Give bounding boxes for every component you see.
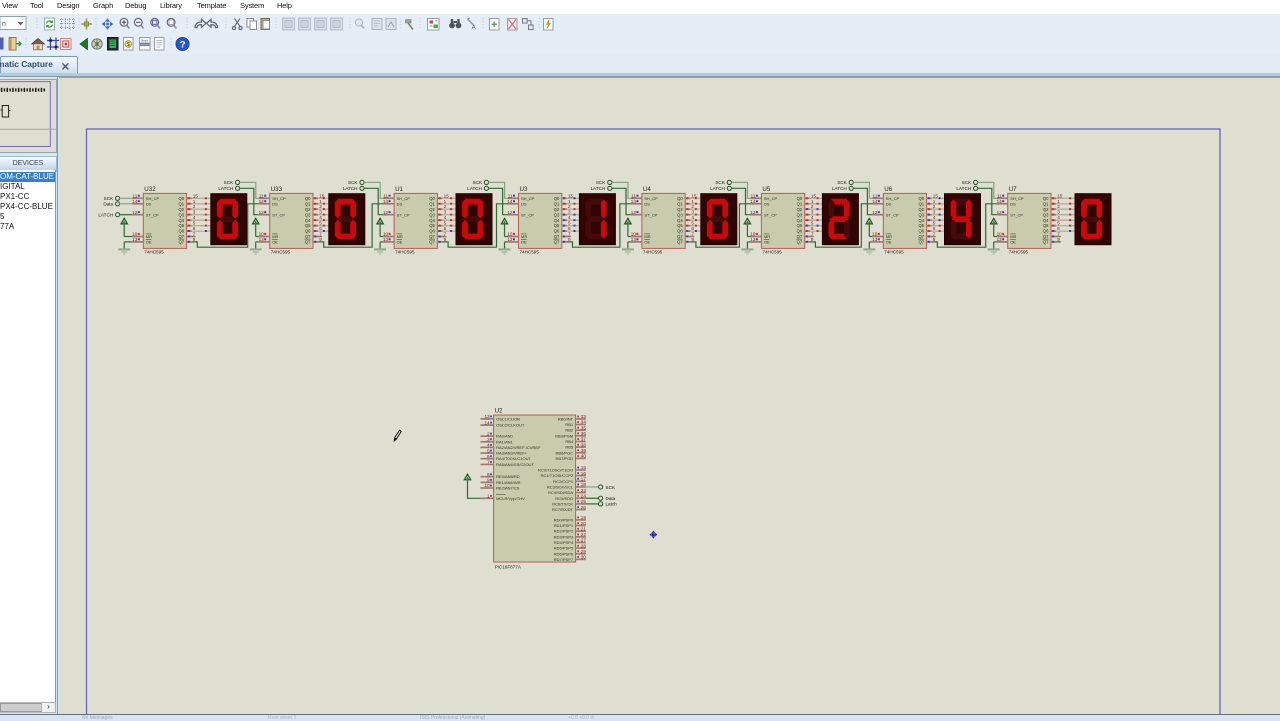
svg-text:Q0: Q0 (1043, 196, 1049, 201)
svg-text:10: 10 (484, 483, 490, 488)
svg-text:13: 13 (484, 414, 490, 419)
svg-text:RC7/RX/DT: RC7/RX/DT (552, 507, 574, 512)
svg-text:U6: U6 (884, 186, 892, 193)
svg-text:Q1: Q1 (797, 201, 803, 206)
svg-text:DS: DS (886, 201, 892, 206)
svg-text:PIC16F877A: PIC16F877A (495, 565, 522, 570)
svg-text:15: 15 (319, 193, 325, 198)
svg-text:6: 6 (691, 226, 694, 231)
svg-text:SCK: SCK (596, 180, 606, 185)
svg-text:5: 5 (319, 221, 322, 226)
svg-text:11: 11 (631, 194, 636, 199)
svg-text:Q0: Q0 (919, 196, 925, 201)
svg-text:Q7: Q7 (677, 240, 683, 245)
svg-text:16: 16 (581, 471, 587, 476)
svg-text:SH_CP: SH_CP (521, 196, 535, 201)
svg-text:RD0/PSP0: RD0/PSP0 (554, 517, 574, 522)
svg-text:SCK: SCK (472, 180, 482, 185)
svg-text:RA2/AN2/VREF-/CVREF: RA2/AN2/VREF-/CVREF (496, 445, 541, 450)
svg-text:5: 5 (444, 221, 447, 226)
svg-text:26: 26 (581, 505, 587, 510)
svg-text:0mm: 0mm (141, 39, 149, 43)
svg-text:7: 7 (811, 232, 814, 237)
svg-text:Q2: Q2 (1043, 207, 1049, 212)
svg-text:Q2: Q2 (305, 207, 311, 212)
svg-text:15: 15 (581, 465, 587, 470)
svg-text:MR: MR (397, 234, 403, 239)
svg-text:22: 22 (581, 532, 587, 537)
svg-text:2: 2 (568, 204, 571, 209)
svg-text:Q0: Q0 (429, 196, 435, 201)
svg-text:LATCH: LATCH (98, 213, 113, 218)
svg-text:Q4: Q4 (305, 218, 311, 223)
svg-text:SCK: SCK (606, 485, 616, 490)
svg-text:3: 3 (193, 210, 196, 215)
svg-text:Data: Data (103, 202, 113, 207)
svg-text:Q6: Q6 (677, 229, 683, 234)
svg-text:13: 13 (631, 237, 637, 242)
svg-text:Q6: Q6 (429, 229, 435, 234)
svg-text:Q2: Q2 (179, 207, 185, 212)
svg-text:OE: OE (644, 240, 650, 245)
svg-text:74HC595: 74HC595 (395, 250, 415, 255)
svg-text:RA0/AN0: RA0/AN0 (496, 434, 513, 439)
svg-text:Q2: Q2 (919, 207, 925, 212)
svg-text:7: 7 (1057, 232, 1060, 237)
svg-text:6: 6 (1057, 226, 1060, 231)
svg-text:Q6: Q6 (797, 229, 803, 234)
svg-text:7: 7 (691, 232, 694, 237)
svg-text:Q4: Q4 (429, 218, 435, 223)
svg-text:4: 4 (933, 215, 936, 220)
svg-text:Latch: Latch (606, 502, 618, 507)
svg-text:11: 11 (383, 194, 388, 199)
svg-text:15: 15 (193, 193, 199, 198)
svg-text:Q6: Q6 (919, 229, 925, 234)
svg-text:1: 1 (933, 199, 936, 204)
svg-text:MCLR/Vpp/THV: MCLR/Vpp/THV (496, 496, 525, 501)
svg-text:RA3/AN3/VREF+: RA3/AN3/VREF+ (496, 451, 527, 456)
svg-text:U3: U3 (520, 186, 528, 193)
svg-text:7: 7 (444, 232, 447, 237)
svg-text:RC4/SDI/SDA: RC4/SDI/SDA (548, 490, 573, 495)
svg-text:RD2/PSP2: RD2/PSP2 (554, 529, 574, 534)
svg-text:7: 7 (933, 232, 936, 237)
svg-text:Q1: Q1 (305, 201, 311, 206)
svg-text:6: 6 (193, 226, 196, 231)
svg-text:2: 2 (933, 204, 936, 209)
svg-text:9: 9 (487, 478, 490, 483)
svg-text:Q0: Q0 (179, 196, 185, 201)
svg-text:15: 15 (1057, 193, 1063, 198)
svg-text:3: 3 (811, 210, 814, 215)
svg-text:Q7: Q7 (305, 234, 311, 239)
svg-text:OE: OE (521, 240, 527, 245)
svg-text:28: 28 (581, 543, 587, 548)
svg-text:14: 14 (997, 199, 1003, 204)
svg-text:2: 2 (193, 204, 196, 209)
svg-text:13: 13 (750, 237, 756, 242)
svg-text:LATCH: LATCH (467, 186, 482, 191)
svg-text:5: 5 (487, 448, 490, 453)
svg-text:Q0: Q0 (305, 196, 311, 201)
svg-text:33: 33 (581, 414, 587, 419)
svg-text:21: 21 (581, 526, 587, 531)
svg-text:15: 15 (691, 193, 697, 198)
svg-text:74HC595: 74HC595 (1009, 250, 1029, 255)
svg-text:14: 14 (132, 199, 138, 204)
svg-text:SCK: SCK (224, 180, 234, 185)
svg-text:Q5: Q5 (1043, 223, 1049, 228)
svg-text:Q5: Q5 (305, 223, 311, 228)
svg-text:SH_CP: SH_CP (272, 196, 286, 201)
svg-text:RB7/PGD: RB7/PGD (556, 456, 574, 461)
svg-text:Q7: Q7 (919, 234, 925, 239)
svg-text:9: 9 (319, 237, 322, 242)
svg-text:4: 4 (319, 215, 322, 220)
svg-text:8: 8 (487, 472, 490, 477)
svg-text:1: 1 (444, 199, 447, 204)
svg-text:Q4: Q4 (1043, 218, 1049, 223)
svg-text:MR: MR (272, 234, 278, 239)
svg-text:19: 19 (581, 515, 587, 520)
svg-text:Q7: Q7 (179, 234, 185, 239)
svg-text:13: 13 (872, 237, 878, 242)
svg-text:RA1/AN1: RA1/AN1 (496, 439, 513, 444)
svg-text:14: 14 (750, 199, 756, 204)
svg-text:6: 6 (811, 226, 814, 231)
svg-text:10: 10 (872, 232, 878, 237)
svg-text:Q7: Q7 (429, 240, 435, 245)
svg-text:11: 11 (751, 194, 756, 199)
svg-text:3: 3 (1057, 210, 1060, 215)
svg-text:RD7/PSP7: RD7/PSP7 (554, 557, 574, 562)
svg-text:Q3: Q3 (797, 212, 803, 217)
svg-text:Q3: Q3 (919, 212, 925, 217)
svg-text:Q4: Q4 (797, 218, 803, 223)
svg-text:U5: U5 (762, 186, 770, 193)
svg-text:RC2/CCP1: RC2/CCP1 (553, 479, 574, 484)
svg-text:23: 23 (581, 488, 587, 493)
svg-text:MR: MR (764, 234, 770, 239)
svg-text:DS: DS (764, 201, 770, 206)
svg-text:DS: DS (272, 201, 278, 206)
svg-text:3: 3 (444, 210, 447, 215)
svg-text:4: 4 (691, 215, 694, 220)
svg-text:38: 38 (581, 442, 587, 447)
svg-text:4: 4 (811, 215, 814, 220)
svg-text:14: 14 (259, 199, 265, 204)
svg-text:7: 7 (193, 232, 196, 237)
svg-text:29: 29 (581, 549, 587, 554)
svg-text:12: 12 (997, 210, 1003, 215)
svg-text:10: 10 (750, 232, 756, 237)
svg-text:OE: OE (272, 240, 278, 245)
svg-text:11: 11 (997, 194, 1002, 199)
svg-text:6: 6 (933, 226, 936, 231)
svg-text:1: 1 (691, 199, 694, 204)
svg-text:Q6: Q6 (1043, 229, 1049, 234)
svg-text:12: 12 (383, 210, 389, 215)
svg-text:9: 9 (568, 237, 571, 242)
svg-text:Q7: Q7 (1043, 240, 1049, 245)
svg-text:6: 6 (487, 454, 490, 459)
svg-text:Q1: Q1 (677, 201, 683, 206)
svg-text:SH_CP: SH_CP (644, 196, 658, 201)
svg-text:2: 2 (691, 204, 694, 209)
svg-text:11: 11 (133, 194, 138, 199)
svg-text:1: 1 (487, 494, 490, 499)
svg-text:Q5: Q5 (677, 223, 683, 228)
svg-text:3: 3 (568, 210, 571, 215)
svg-text:11: 11 (259, 194, 264, 199)
svg-text:9: 9 (444, 237, 447, 242)
svg-text:Q5: Q5 (429, 223, 435, 228)
svg-text:U2: U2 (495, 408, 503, 415)
svg-text:14: 14 (507, 199, 513, 204)
svg-text:20: 20 (581, 521, 587, 526)
svg-text:Q2: Q2 (797, 207, 803, 212)
svg-text:10: 10 (997, 232, 1003, 237)
svg-text:RD1/PSP1: RD1/PSP1 (554, 523, 574, 528)
svg-text:ST_CP: ST_CP (272, 212, 285, 217)
svg-text:OE: OE (764, 240, 770, 245)
svg-text:1: 1 (319, 199, 322, 204)
svg-text:U32: U32 (144, 186, 156, 193)
svg-text:LATCH: LATCH (591, 186, 606, 191)
svg-text:Q5: Q5 (797, 223, 803, 228)
svg-text:13: 13 (259, 237, 265, 242)
svg-text:9: 9 (811, 237, 814, 242)
svg-text:Q1: Q1 (554, 201, 560, 206)
svg-text:5: 5 (811, 221, 814, 226)
svg-text:RD5/PSP5: RD5/PSP5 (554, 546, 574, 551)
svg-text:1: 1 (1057, 199, 1060, 204)
svg-text:12: 12 (507, 210, 513, 215)
svg-text:6: 6 (319, 226, 322, 231)
svg-text:13: 13 (997, 237, 1003, 242)
svg-text:Q3: Q3 (179, 212, 185, 217)
svg-text:1: 1 (568, 199, 571, 204)
svg-text:Q3: Q3 (554, 212, 560, 217)
svg-text:Q3: Q3 (429, 212, 435, 217)
svg-text:Q1: Q1 (1043, 201, 1049, 206)
svg-text:4: 4 (1057, 215, 1060, 220)
svg-text:3: 3 (691, 210, 694, 215)
svg-text:LATCH: LATCH (956, 186, 971, 191)
svg-text:2: 2 (444, 204, 447, 209)
svg-text:ST_CP: ST_CP (644, 212, 657, 217)
svg-text:LATCH: LATCH (218, 186, 233, 191)
svg-text:2: 2 (319, 204, 322, 209)
svg-text:10: 10 (631, 232, 637, 237)
svg-text:Q7: Q7 (919, 240, 925, 245)
svg-text:9: 9 (193, 237, 196, 242)
svg-text:U4: U4 (643, 186, 651, 193)
svg-text:5: 5 (568, 221, 571, 226)
svg-text:OSC1/CLKIN: OSC1/CLKIN (496, 416, 520, 421)
svg-text:12: 12 (132, 210, 138, 215)
svg-text:15: 15 (811, 193, 817, 198)
svg-text:25: 25 (581, 499, 587, 504)
svg-text:10: 10 (383, 232, 389, 237)
svg-text:1: 1 (811, 199, 814, 204)
svg-text:15: 15 (444, 193, 450, 198)
svg-text:SH_CP: SH_CP (764, 196, 778, 201)
svg-text:MR: MR (886, 234, 892, 239)
svg-text:LATCH: LATCH (832, 186, 847, 191)
svg-text:OE: OE (146, 240, 152, 245)
svg-text:5: 5 (1057, 221, 1060, 226)
svg-text:ST_CP: ST_CP (1010, 212, 1023, 217)
svg-text:Q4: Q4 (677, 218, 683, 223)
svg-text:13: 13 (132, 237, 138, 242)
svg-text:DS: DS (397, 201, 403, 206)
svg-text:SH_CP: SH_CP (397, 196, 411, 201)
svg-text:40: 40 (581, 454, 587, 459)
svg-text:RC0/T1OSO/T1CKI: RC0/T1OSO/T1CKI (538, 468, 573, 473)
svg-text:4: 4 (568, 215, 571, 220)
svg-text:Q0: Q0 (554, 196, 560, 201)
svg-text:RB5: RB5 (565, 445, 574, 450)
svg-text:RA4/T0CKI/C1OUT: RA4/T0CKI/C1OUT (496, 456, 531, 461)
svg-text:7: 7 (568, 232, 571, 237)
svg-text:12: 12 (631, 210, 637, 215)
svg-text:74HC595: 74HC595 (520, 250, 540, 255)
svg-text:15: 15 (568, 193, 574, 198)
svg-text:SH_CP: SH_CP (886, 196, 900, 201)
svg-text:Data: Data (606, 496, 616, 501)
svg-text:74HC595: 74HC595 (271, 250, 291, 255)
svg-text:U7: U7 (1009, 186, 1017, 193)
svg-text:OE: OE (397, 240, 403, 245)
svg-text:2: 2 (811, 204, 814, 209)
svg-text:13: 13 (383, 237, 389, 242)
svg-text:17: 17 (581, 477, 587, 482)
svg-text:74HC595: 74HC595 (144, 250, 164, 255)
svg-text:74HC595: 74HC595 (643, 250, 663, 255)
svg-text:SCK: SCK (837, 180, 847, 185)
svg-text:36: 36 (581, 431, 587, 436)
svg-text:Q0: Q0 (797, 196, 803, 201)
svg-text:Q7: Q7 (677, 234, 683, 239)
svg-text:14: 14 (383, 199, 389, 204)
svg-text:5: 5 (691, 221, 694, 226)
svg-text:Q5: Q5 (554, 223, 560, 228)
svg-text:1: 1 (193, 199, 196, 204)
svg-text:6: 6 (444, 226, 447, 231)
svg-text:DS: DS (1010, 201, 1016, 206)
svg-text:Q5: Q5 (919, 223, 925, 228)
svg-text:ST_CP: ST_CP (886, 212, 899, 217)
svg-text:30: 30 (581, 555, 587, 560)
svg-text:12: 12 (872, 210, 878, 215)
svg-text:RB1: RB1 (565, 422, 574, 427)
svg-text:Q3: Q3 (1043, 212, 1049, 217)
svg-text:Q6: Q6 (179, 229, 185, 234)
svg-text:OSC2/CLKOUT: OSC2/CLKOUT (496, 423, 525, 428)
svg-text:SCK: SCK (348, 180, 358, 185)
svg-text:6: 6 (568, 226, 571, 231)
svg-text:Q4: Q4 (554, 218, 560, 223)
svg-text:Q7: Q7 (179, 240, 185, 245)
svg-text:Q4: Q4 (919, 218, 925, 223)
svg-text:Q2: Q2 (429, 207, 435, 212)
svg-text:OE: OE (1010, 240, 1016, 245)
svg-text:10: 10 (507, 232, 513, 237)
svg-text:MR: MR (146, 234, 152, 239)
svg-text:n: n (2, 21, 6, 28)
svg-text:Q5: Q5 (179, 223, 185, 228)
svg-text:RB6/PGC: RB6/PGC (556, 450, 574, 455)
svg-text:Q7: Q7 (797, 234, 803, 239)
svg-text:14: 14 (872, 199, 878, 204)
svg-text:Q7: Q7 (429, 234, 435, 239)
svg-text:Q6: Q6 (554, 229, 560, 234)
svg-text:14: 14 (631, 199, 637, 204)
svg-text:ST_CP: ST_CP (764, 212, 777, 217)
svg-text:OE: OE (886, 240, 892, 245)
svg-text:RE2/AN7/CS: RE2/AN7/CS (496, 486, 520, 491)
svg-text:ST_CP: ST_CP (521, 212, 534, 217)
svg-text:SCK: SCK (962, 180, 972, 185)
svg-text:34: 34 (581, 420, 587, 425)
svg-text:Q2: Q2 (554, 207, 560, 212)
svg-text:37: 37 (581, 437, 587, 442)
svg-text:SH_CP: SH_CP (1010, 196, 1024, 201)
svg-text:RC6/TX/CK: RC6/TX/CK (552, 501, 573, 506)
svg-text:Q7: Q7 (797, 240, 803, 245)
svg-text:MR: MR (1010, 234, 1016, 239)
svg-text:5: 5 (933, 221, 936, 226)
svg-text:11: 11 (508, 194, 513, 199)
svg-text:2: 2 (487, 431, 490, 436)
svg-text:RC1/T1OSI/CCP2: RC1/T1OSI/CCP2 (541, 473, 574, 478)
svg-text:3: 3 (933, 210, 936, 215)
svg-text:7: 7 (487, 460, 490, 465)
svg-text:LATCH: LATCH (710, 186, 725, 191)
svg-text:DS: DS (146, 201, 152, 206)
svg-text:RA5/AN4/SS/C2OUT: RA5/AN4/SS/C2OUT (496, 462, 534, 467)
svg-text:18: 18 (581, 482, 587, 487)
svg-text:SCK: SCK (104, 196, 114, 201)
svg-text:?: ? (180, 39, 186, 50)
svg-text:Q1: Q1 (919, 201, 925, 206)
svg-text:74HC595: 74HC595 (884, 250, 904, 255)
svg-text:10: 10 (259, 232, 265, 237)
svg-text:12: 12 (750, 210, 756, 215)
svg-text:Q1: Q1 (179, 201, 185, 206)
svg-text:10: 10 (132, 232, 138, 237)
svg-text:9: 9 (933, 237, 936, 242)
svg-text:Q7: Q7 (305, 240, 311, 245)
svg-text:11: 11 (873, 194, 878, 199)
svg-text:2: 2 (1057, 204, 1060, 209)
svg-text:9: 9 (1057, 237, 1060, 242)
svg-text:35: 35 (581, 425, 587, 430)
svg-text:U1: U1 (395, 186, 403, 193)
svg-text:DS: DS (644, 201, 650, 206)
svg-text:4: 4 (193, 215, 196, 220)
svg-text:39: 39 (581, 448, 587, 453)
svg-text:Q0: Q0 (677, 196, 683, 201)
svg-text:RC3/SCK/SCL: RC3/SCK/SCL (547, 484, 574, 489)
svg-text:RD4/PSP4: RD4/PSP4 (554, 540, 574, 545)
svg-text:RB2: RB2 (565, 428, 574, 433)
svg-text:SCK: SCK (715, 180, 725, 185)
svg-text:Q7: Q7 (554, 234, 560, 239)
svg-text:ST_CP: ST_CP (146, 212, 159, 217)
